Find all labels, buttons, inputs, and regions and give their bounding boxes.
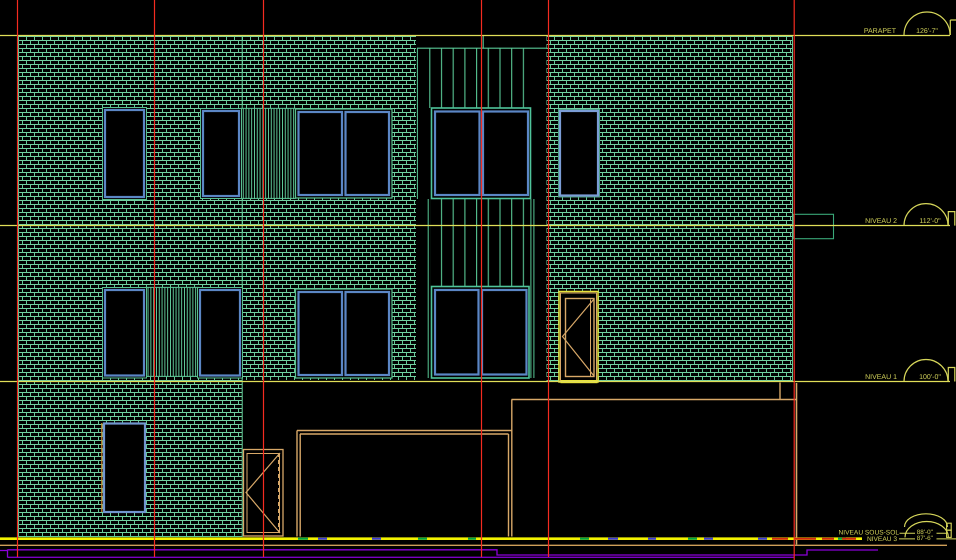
svg-text:PARAPET: PARAPET <box>864 28 897 35</box>
svg-text:NIVEAU 3: NIVEAU 3 <box>867 536 897 543</box>
svg-text:100'-0": 100'-0" <box>919 374 941 381</box>
svg-text:87'-6": 87'-6" <box>917 535 933 542</box>
svg-text:NIVEAU 2: NIVEAU 2 <box>865 218 897 225</box>
svg-text:126'-7": 126'-7" <box>916 28 938 35</box>
svg-text:112'-0": 112'-0" <box>919 218 941 225</box>
svg-text:NIVEAU 1: NIVEAU 1 <box>865 374 897 381</box>
